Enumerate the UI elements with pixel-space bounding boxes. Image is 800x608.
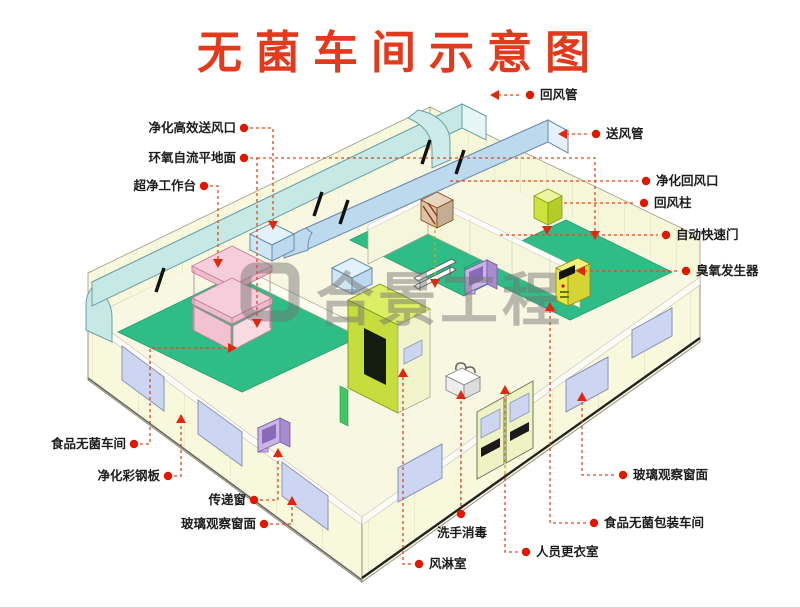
label-air-shower: 风淋室: [429, 556, 467, 571]
label-purification-return-vent: 净化回风口: [656, 173, 719, 188]
cleanroom-isometric-diagram: 合景工程: [0, 0, 800, 607]
label-clean-workbench: 超净工作台: [132, 178, 196, 193]
label-supply-duct: 送风管: [605, 126, 644, 141]
label-auto-fast-door: 自动快速门: [676, 227, 739, 242]
diagram-page: 无菌车间示意图: [0, 0, 800, 608]
label-dot: [590, 519, 598, 527]
label-color-steel-panel: 净化彩钢板: [97, 468, 160, 483]
label-dot: [526, 91, 534, 99]
label-epoxy-floor: 环氧自流平地面: [148, 150, 236, 165]
label-dot: [240, 154, 248, 162]
label-dot: [457, 510, 465, 518]
label-staff-changing-room: 人员更衣室: [536, 544, 599, 559]
label-dot: [415, 560, 423, 568]
label-dot: [164, 472, 172, 480]
label-food-packaging-workshop: 食品无菌包装车间: [603, 515, 704, 530]
label-glass-window-left: 玻璃观察窗面: [181, 516, 257, 531]
label-transfer-window: 传递窗: [207, 492, 246, 507]
label-dot: [200, 182, 208, 190]
label-dot: [619, 471, 627, 479]
label-dot: [642, 177, 650, 185]
label-dot: [250, 496, 258, 504]
label-food-sterile-workshop: 食品无菌车间: [50, 436, 126, 451]
label-dot: [522, 548, 530, 556]
label-dot: [592, 130, 600, 138]
label-dot: [240, 124, 248, 132]
label-dot: [130, 440, 138, 448]
green-door-strip: [340, 386, 348, 426]
left-arrow-icon: [490, 90, 499, 100]
watermark-text: 合景工程: [316, 268, 564, 333]
leader-return-duct: [490, 90, 534, 100]
label-dot: [682, 267, 690, 275]
label-glass-window-right: 玻璃观察窗面: [633, 467, 709, 482]
label-dot: [662, 231, 670, 239]
label-dot: [260, 520, 268, 528]
label-hepa-supply-vent: 净化高效送风口: [148, 120, 236, 135]
purification-return-vent: [421, 192, 453, 228]
label-return-air-column: 回风柱: [654, 195, 692, 210]
label-dot: [640, 199, 648, 207]
return-air-column: [534, 189, 562, 225]
leader-supply-duct: [558, 129, 600, 139]
label-ozone-generator: 臭氧发生器: [696, 263, 759, 278]
label-return-duct: 回风管: [540, 87, 578, 102]
label-hand-wash: 洗手消毒: [437, 525, 488, 540]
